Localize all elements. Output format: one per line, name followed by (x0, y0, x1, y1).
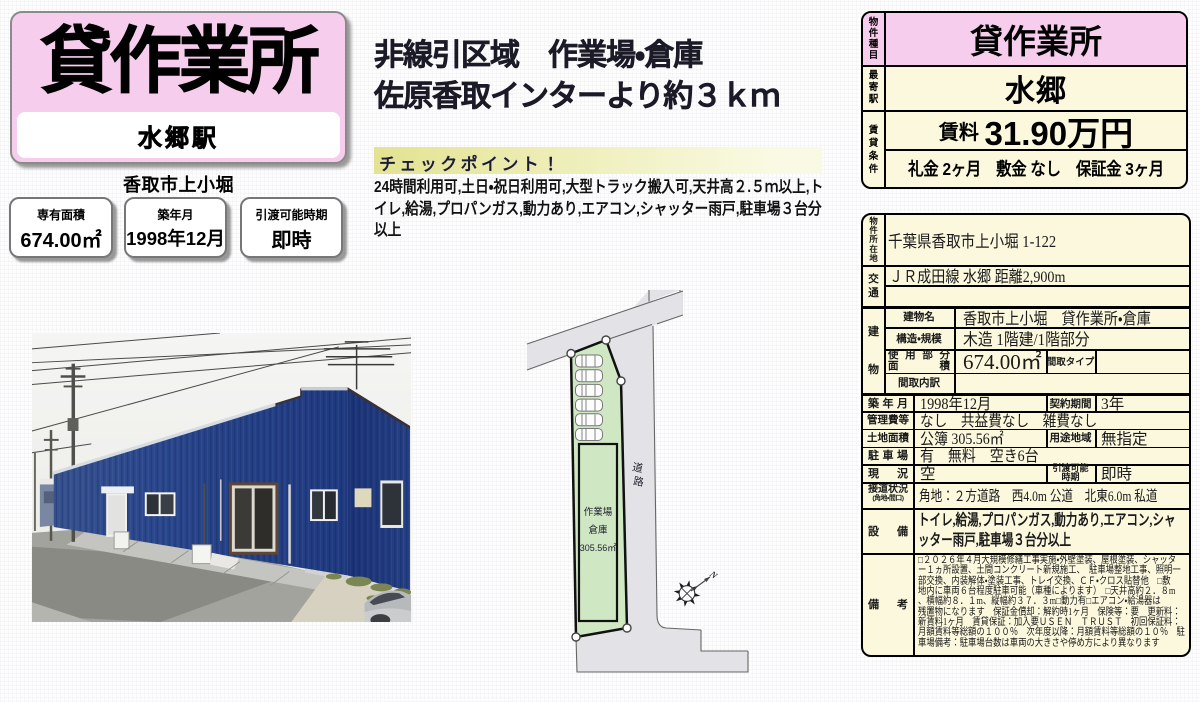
svg-text:作業場: 作業場 (584, 506, 613, 518)
svg-text:N: N (707, 568, 719, 581)
svg-text:305.56㎡: 305.56㎡ (580, 543, 617, 553)
svg-text:倉庫: 倉庫 (588, 524, 608, 536)
